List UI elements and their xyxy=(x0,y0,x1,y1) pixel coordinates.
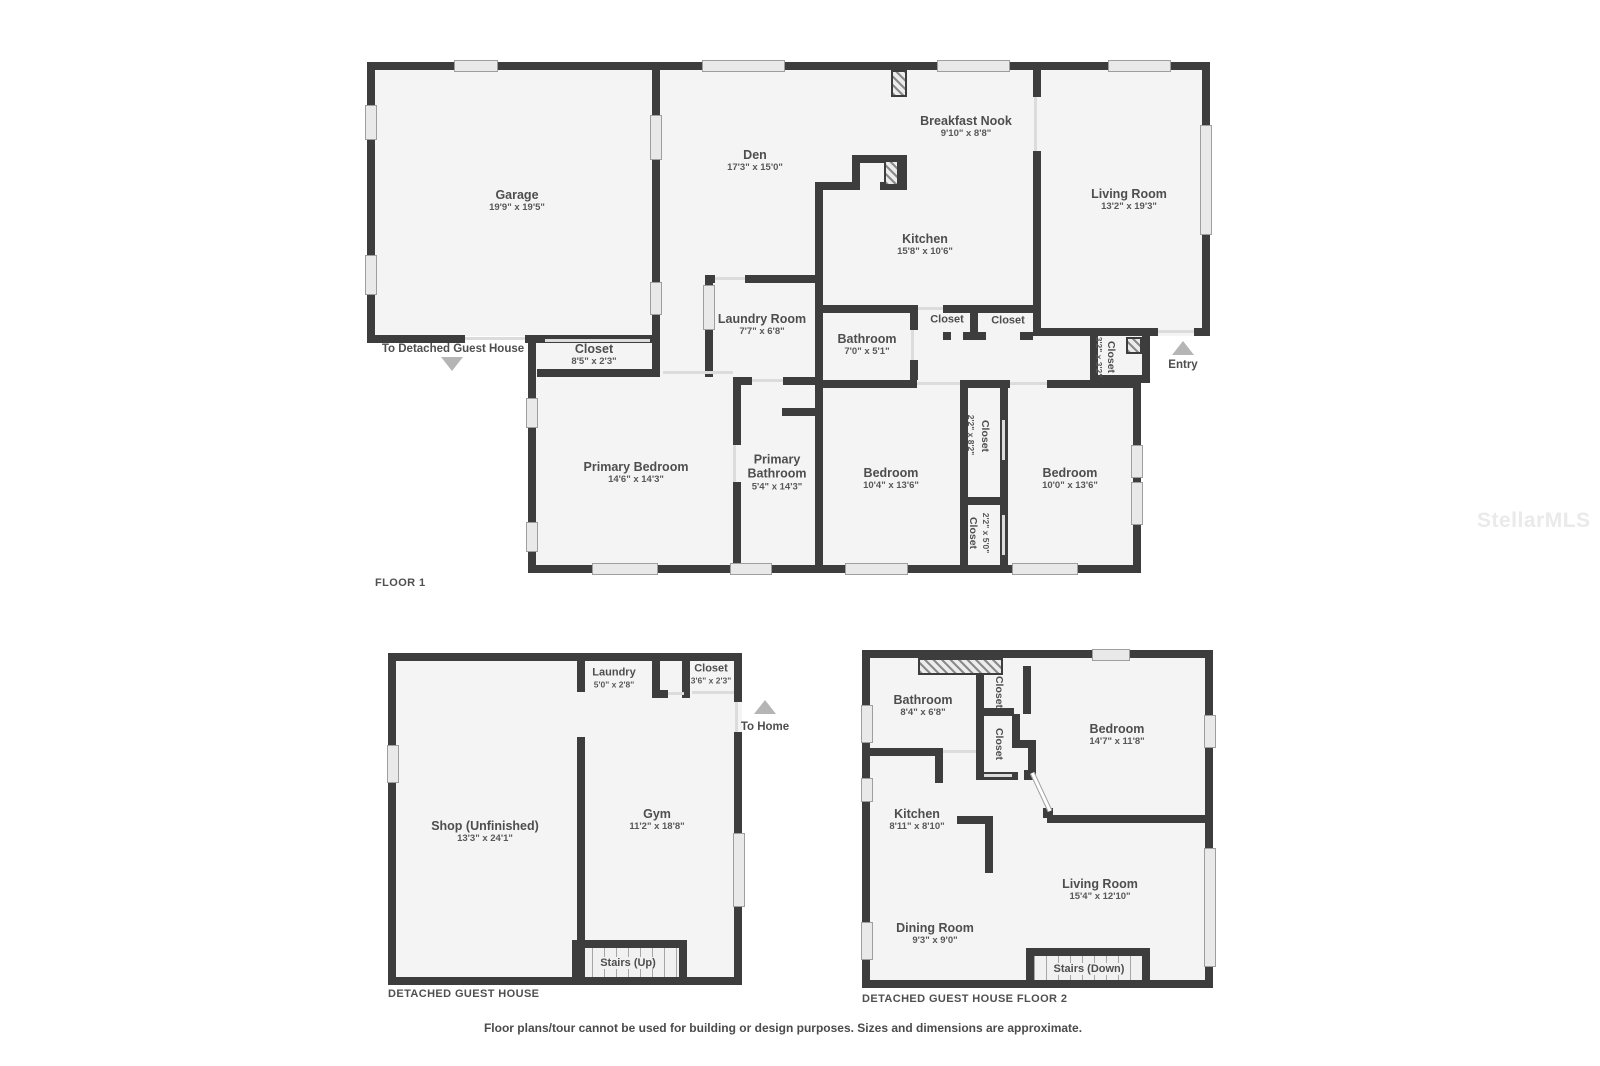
window xyxy=(861,922,873,960)
wall xyxy=(1033,151,1041,336)
door-line xyxy=(715,277,745,280)
wall xyxy=(733,377,741,445)
wall xyxy=(572,940,687,948)
room-label-den: Den 17'3" x 15'0" xyxy=(727,148,783,174)
wall xyxy=(652,690,668,698)
wall xyxy=(1033,62,1041,97)
wall xyxy=(862,650,1213,658)
room-label-closet-garage: Closet 8'5" x 2'3" xyxy=(571,342,616,368)
door-line xyxy=(752,379,783,382)
door-line xyxy=(1002,515,1005,555)
disclaimer-text: Floor plans/tour cannot be used for buil… xyxy=(0,1021,1566,1035)
wall xyxy=(1142,948,1150,988)
room-label-kitchen-gh2: Kitchen 8'11" x 8'10" xyxy=(889,807,944,833)
wall xyxy=(1026,948,1150,956)
hatch-block xyxy=(891,70,907,97)
window xyxy=(733,833,745,907)
door-line xyxy=(984,774,1012,777)
arrow-down-icon xyxy=(441,357,463,371)
door-line xyxy=(1034,97,1037,151)
window xyxy=(937,60,1010,72)
window xyxy=(454,60,498,72)
door-line xyxy=(668,692,684,695)
wall xyxy=(745,275,815,283)
door-line xyxy=(917,382,960,385)
window xyxy=(861,705,873,743)
room-label-living-room-gh2: Living Room 15'4" x 12'10" xyxy=(1062,877,1138,903)
wall xyxy=(1033,328,1158,336)
room-label-primary-bathroom: Primary Bathroom 5'4" x 14'3" xyxy=(735,453,819,494)
wall xyxy=(822,380,917,388)
window xyxy=(730,563,772,575)
window xyxy=(861,778,873,802)
window xyxy=(365,255,377,295)
room-label-dining-room-gh2: Dining Room 9'3" x 9'0" xyxy=(896,921,974,947)
room-label-closet-hall-1: Closet xyxy=(930,314,964,327)
window xyxy=(703,285,715,330)
wall xyxy=(1194,328,1210,336)
window xyxy=(526,522,538,552)
door-line xyxy=(1002,420,1005,460)
room-label-bathroom-f1: Bathroom 7'0" x 5'1" xyxy=(837,332,896,358)
hatch-block xyxy=(884,160,899,186)
window xyxy=(592,563,658,575)
window xyxy=(1200,125,1212,235)
wall xyxy=(943,305,1033,313)
window xyxy=(845,563,908,575)
wall xyxy=(1023,666,1031,714)
room-label-bedroom-1: Bedroom 10'4" x 13'6" xyxy=(863,466,919,492)
door-line xyxy=(663,371,733,374)
window xyxy=(1108,60,1171,72)
watermark: StellarMLS xyxy=(1477,509,1591,533)
door-line xyxy=(918,307,943,310)
window xyxy=(702,60,785,72)
window xyxy=(1204,848,1216,967)
wall xyxy=(976,708,984,778)
window xyxy=(1131,445,1143,478)
guest1-caption: DETACHED GUEST HOUSE xyxy=(388,988,539,1000)
stairs-up-label: Stairs (Up) xyxy=(596,957,660,969)
arrow-up-icon xyxy=(754,700,776,714)
wall xyxy=(978,332,986,340)
room-label-bathroom-gh2: Bathroom 8'4" x 6'8" xyxy=(893,693,952,719)
room-label-breakfast-nook: Breakfast Nook 9'10" x 8'8" xyxy=(920,114,1012,140)
stairs-down-label: Stairs (Down) xyxy=(1050,963,1129,975)
wall xyxy=(970,305,978,340)
room-label-closet-gh: Closet 3'6" x 2'3" xyxy=(691,662,731,685)
room-dims-closet-a: 2'2" x 8'2" xyxy=(963,415,981,455)
guest2-caption: DETACHED GUEST HOUSE FLOOR 2 xyxy=(862,993,1067,1005)
door-line xyxy=(735,702,738,732)
entry-label: Entry xyxy=(1168,359,1197,371)
wall xyxy=(782,408,815,416)
wall xyxy=(1026,948,1034,988)
to-guest-house-label: To Detached Guest House xyxy=(382,343,524,355)
room-label-laundry-room: Laundry Room 7'7" x 6'8" xyxy=(718,312,806,338)
wall xyxy=(388,653,396,985)
to-home-label: To Home xyxy=(741,721,789,733)
room-label-gym: Gym 11'2" x 18'8" xyxy=(629,807,684,833)
floor-plan-canvas: Garage 19'9" x 19'5" Den 17'3" x 15'0" B… xyxy=(0,0,1600,1066)
window xyxy=(1092,649,1130,661)
window xyxy=(650,115,662,160)
wall xyxy=(815,305,918,313)
wall xyxy=(577,653,585,692)
door-line xyxy=(1010,382,1047,385)
room-label-closet-hall-2: Closet xyxy=(991,315,1025,328)
door-line xyxy=(465,337,525,340)
room-label-closet-gh2-upper: Closet xyxy=(991,676,1009,708)
room-label-laundry-gh: Laundry 5'0" x 2'8" xyxy=(592,666,635,689)
floor1-caption: FLOOR 1 xyxy=(375,577,425,589)
room-label-living-room: Living Room 13'2" x 19'3" xyxy=(1091,187,1167,213)
wall xyxy=(960,497,1008,505)
wall xyxy=(1142,336,1150,383)
door-line xyxy=(943,750,976,753)
wall xyxy=(862,980,1213,988)
wall xyxy=(537,369,660,377)
wall xyxy=(388,977,742,985)
wall xyxy=(815,182,823,565)
room-label-garage: Garage 19'9" x 19'5" xyxy=(489,188,545,214)
arrow-up-icon xyxy=(1172,341,1194,355)
wall xyxy=(910,313,918,330)
window xyxy=(650,282,662,315)
room-dims-closet-entry: 3'2" x 3'2" xyxy=(1091,337,1109,377)
wall xyxy=(910,360,918,380)
window xyxy=(1204,715,1216,748)
room-dims-closet-b: 2'2" x 5'0" xyxy=(978,513,996,553)
wall xyxy=(963,332,971,340)
door-line xyxy=(1158,330,1194,333)
window xyxy=(1131,482,1143,525)
hatch-block xyxy=(1126,337,1142,354)
door-line xyxy=(911,330,914,360)
wall xyxy=(862,748,943,756)
wall xyxy=(572,940,580,985)
room-label-bedroom-gh2: Bedroom 14'7" x 11'8" xyxy=(1089,722,1144,748)
wall xyxy=(733,482,741,565)
wall xyxy=(935,748,943,783)
wall xyxy=(734,653,742,702)
wall xyxy=(985,816,993,873)
window xyxy=(1012,563,1078,575)
room-label-closet-gh2-lower: Closet xyxy=(991,728,1009,760)
window xyxy=(365,105,377,140)
window xyxy=(387,745,399,783)
wall xyxy=(943,332,951,340)
hatch-block xyxy=(918,658,1003,675)
door-line xyxy=(692,691,734,694)
wall xyxy=(1047,380,1141,388)
wall xyxy=(1020,332,1033,340)
wall xyxy=(367,335,465,343)
wall xyxy=(679,940,687,985)
wall xyxy=(960,380,1010,388)
room-label-shop: Shop (Unfinished) 13'3" x 24'1" xyxy=(431,819,539,845)
room-label-kitchen: Kitchen 15'8" x 10'6" xyxy=(897,232,953,258)
window xyxy=(526,398,538,428)
wall xyxy=(1047,815,1213,823)
wall xyxy=(652,62,660,377)
room-label-bedroom-2: Bedroom 10'0" x 13'6" xyxy=(1042,466,1098,492)
room-label-primary-bedroom: Primary Bedroom 14'6" x 14'3" xyxy=(584,460,689,486)
